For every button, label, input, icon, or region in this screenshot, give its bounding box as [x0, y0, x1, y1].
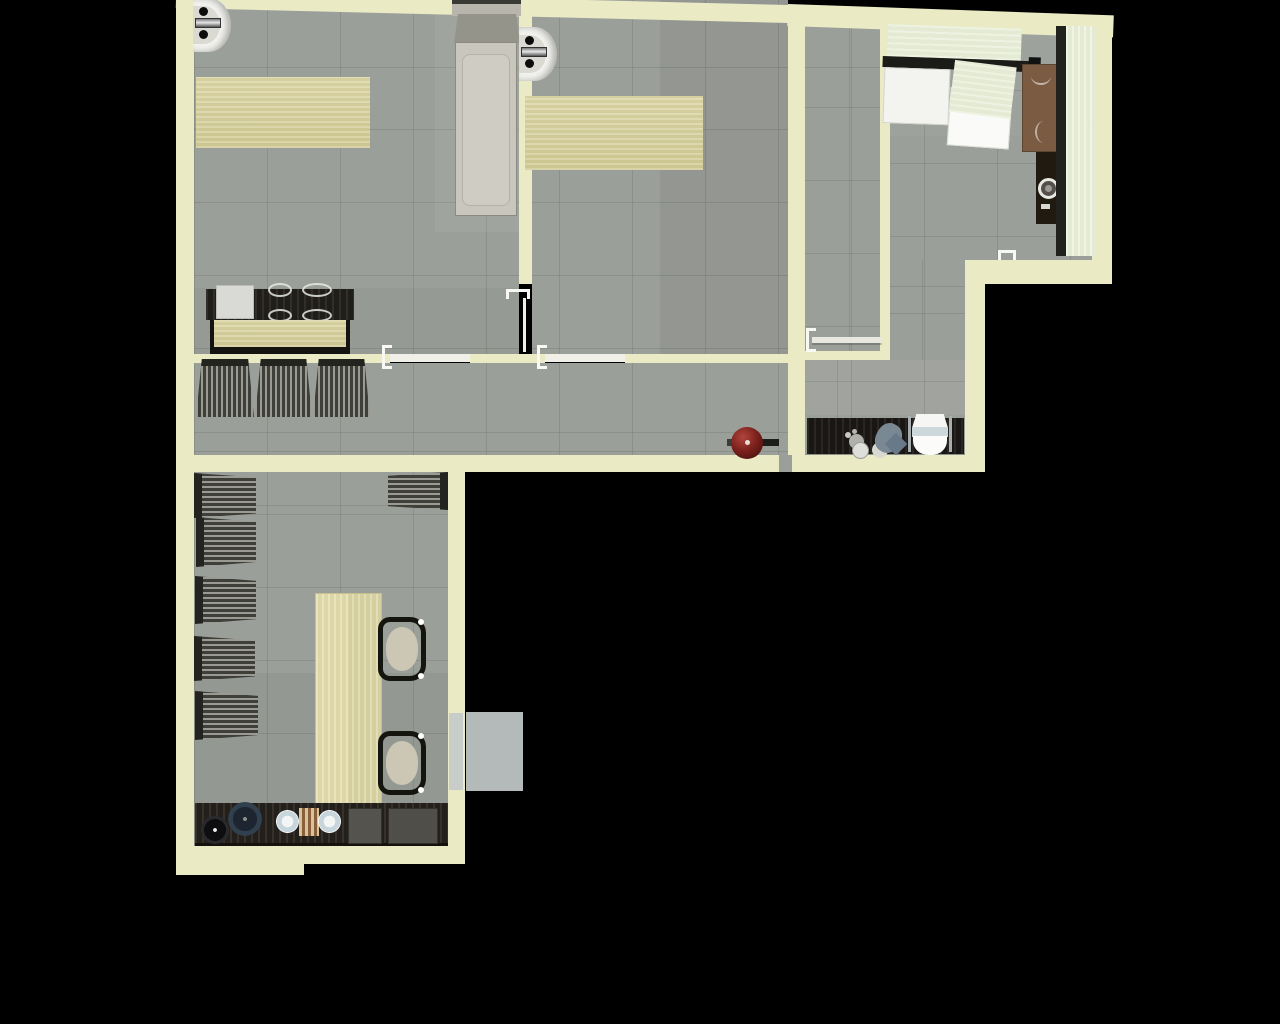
wall-living-room-right	[448, 472, 465, 862]
striped-armchair-lr-1[interactable]	[194, 473, 256, 518]
wall-rooms-corridor-2	[470, 354, 545, 363]
toilet-bowl	[913, 436, 947, 455]
chair-bolt-icon	[418, 673, 424, 679]
bath-sink-bowl[interactable]	[852, 442, 869, 459]
chair-bolt-icon	[418, 733, 424, 739]
chair-bolt-icon	[418, 787, 424, 793]
service-notch	[779, 455, 792, 472]
divider-door-leaf[interactable]	[523, 298, 526, 352]
floor-plan-canvas	[0, 0, 1280, 1024]
faucet-icon	[195, 18, 221, 28]
saucepan[interactable]	[201, 816, 229, 844]
floor-entry-hall	[805, 20, 880, 352]
kitchen-tall-cabinet[interactable]	[1056, 26, 1066, 256]
basin-drain-icon	[525, 59, 534, 68]
plate-2[interactable]	[318, 810, 341, 833]
bed-headboard-slope	[454, 14, 520, 43]
window-right[interactable]	[449, 713, 463, 790]
wood-desk-left[interactable]	[196, 77, 370, 148]
toilet[interactable]	[908, 414, 952, 454]
fridge[interactable]	[882, 67, 950, 125]
door-a-threshold[interactable]	[390, 354, 470, 362]
bed-mattress-pad	[462, 54, 510, 206]
desk-chair-1[interactable]	[378, 617, 426, 681]
balcony-slab[interactable]	[466, 712, 523, 791]
wall-kitchen-bottom	[965, 260, 1112, 284]
stock-pot[interactable]	[228, 802, 262, 836]
wire-chair-icon	[268, 283, 292, 297]
wall-bedroom-middle-right	[788, 6, 805, 455]
door-a-frame	[382, 345, 392, 369]
door-b-frame	[537, 345, 547, 369]
chair-bolt-icon	[418, 619, 424, 625]
washer-drum-center	[1045, 185, 1052, 192]
hall-door-leaf[interactable]	[812, 337, 882, 343]
wall-left-exterior	[176, 0, 194, 865]
striped-armchair-lr-6[interactable]	[388, 472, 448, 510]
striped-armchair-lr-3[interactable]	[195, 576, 256, 624]
divider-door-frame	[506, 289, 530, 299]
plate-1[interactable]	[276, 810, 299, 833]
wall-mid-right-vertical	[965, 260, 985, 460]
kitchen-side-table[interactable]	[1022, 64, 1058, 152]
counter-slab[interactable]	[949, 60, 1017, 119]
wall-bottom-step	[176, 862, 304, 875]
charcoal-kettle[interactable]	[727, 427, 779, 459]
desk-base	[210, 320, 350, 347]
chair-arc-icon	[1031, 67, 1051, 85]
striped-armchair-corridor-2[interactable]	[255, 359, 312, 417]
oven-square[interactable]	[388, 808, 438, 844]
cooktop[interactable]	[348, 808, 382, 844]
paper-sheet[interactable]	[216, 285, 254, 319]
floor-bedroom-middle	[532, 0, 788, 354]
basin-drain-icon	[199, 30, 208, 39]
wire-chair-icon	[302, 283, 332, 297]
toilet-rail	[908, 416, 911, 452]
reception-desk[interactable]	[206, 283, 354, 355]
desk-chair-2[interactable]	[378, 731, 426, 795]
striped-armchair-lr-5[interactable]	[195, 691, 258, 740]
wall-entry-hall-bottom	[805, 351, 890, 360]
striped-armchair-lr-2[interactable]	[196, 517, 256, 567]
faucet-icon	[521, 47, 547, 57]
striped-armchair-corridor-1[interactable]	[196, 359, 254, 417]
striped-armchair-corridor-3[interactable]	[313, 359, 370, 417]
chair-arc-icon	[1035, 121, 1053, 143]
striped-armchair-lr-4[interactable]	[194, 636, 255, 681]
cutting-board[interactable]	[299, 808, 319, 836]
kitchen-counter-strip[interactable]	[1066, 26, 1096, 256]
door-b-threshold[interactable]	[545, 354, 625, 362]
basin-drain-icon	[199, 7, 208, 16]
washer-hinge	[1041, 204, 1050, 209]
wood-desk-middle[interactable]	[525, 96, 703, 170]
floor-kitchen-passage	[890, 260, 965, 360]
toilet-tank	[912, 414, 948, 428]
basin-drain-icon	[525, 36, 534, 45]
chair-cushion	[386, 741, 418, 785]
desk-base-edge	[210, 347, 350, 354]
toilet-rail	[949, 416, 952, 452]
counter-run[interactable]	[887, 24, 1022, 61]
kitchen-door-frame	[998, 250, 1016, 260]
single-bed[interactable]	[451, 0, 522, 219]
dining-table[interactable]	[315, 593, 382, 806]
chair-cushion	[386, 627, 418, 671]
kettle-knob	[745, 440, 750, 445]
wall-rooms-corridor-3	[625, 354, 788, 363]
